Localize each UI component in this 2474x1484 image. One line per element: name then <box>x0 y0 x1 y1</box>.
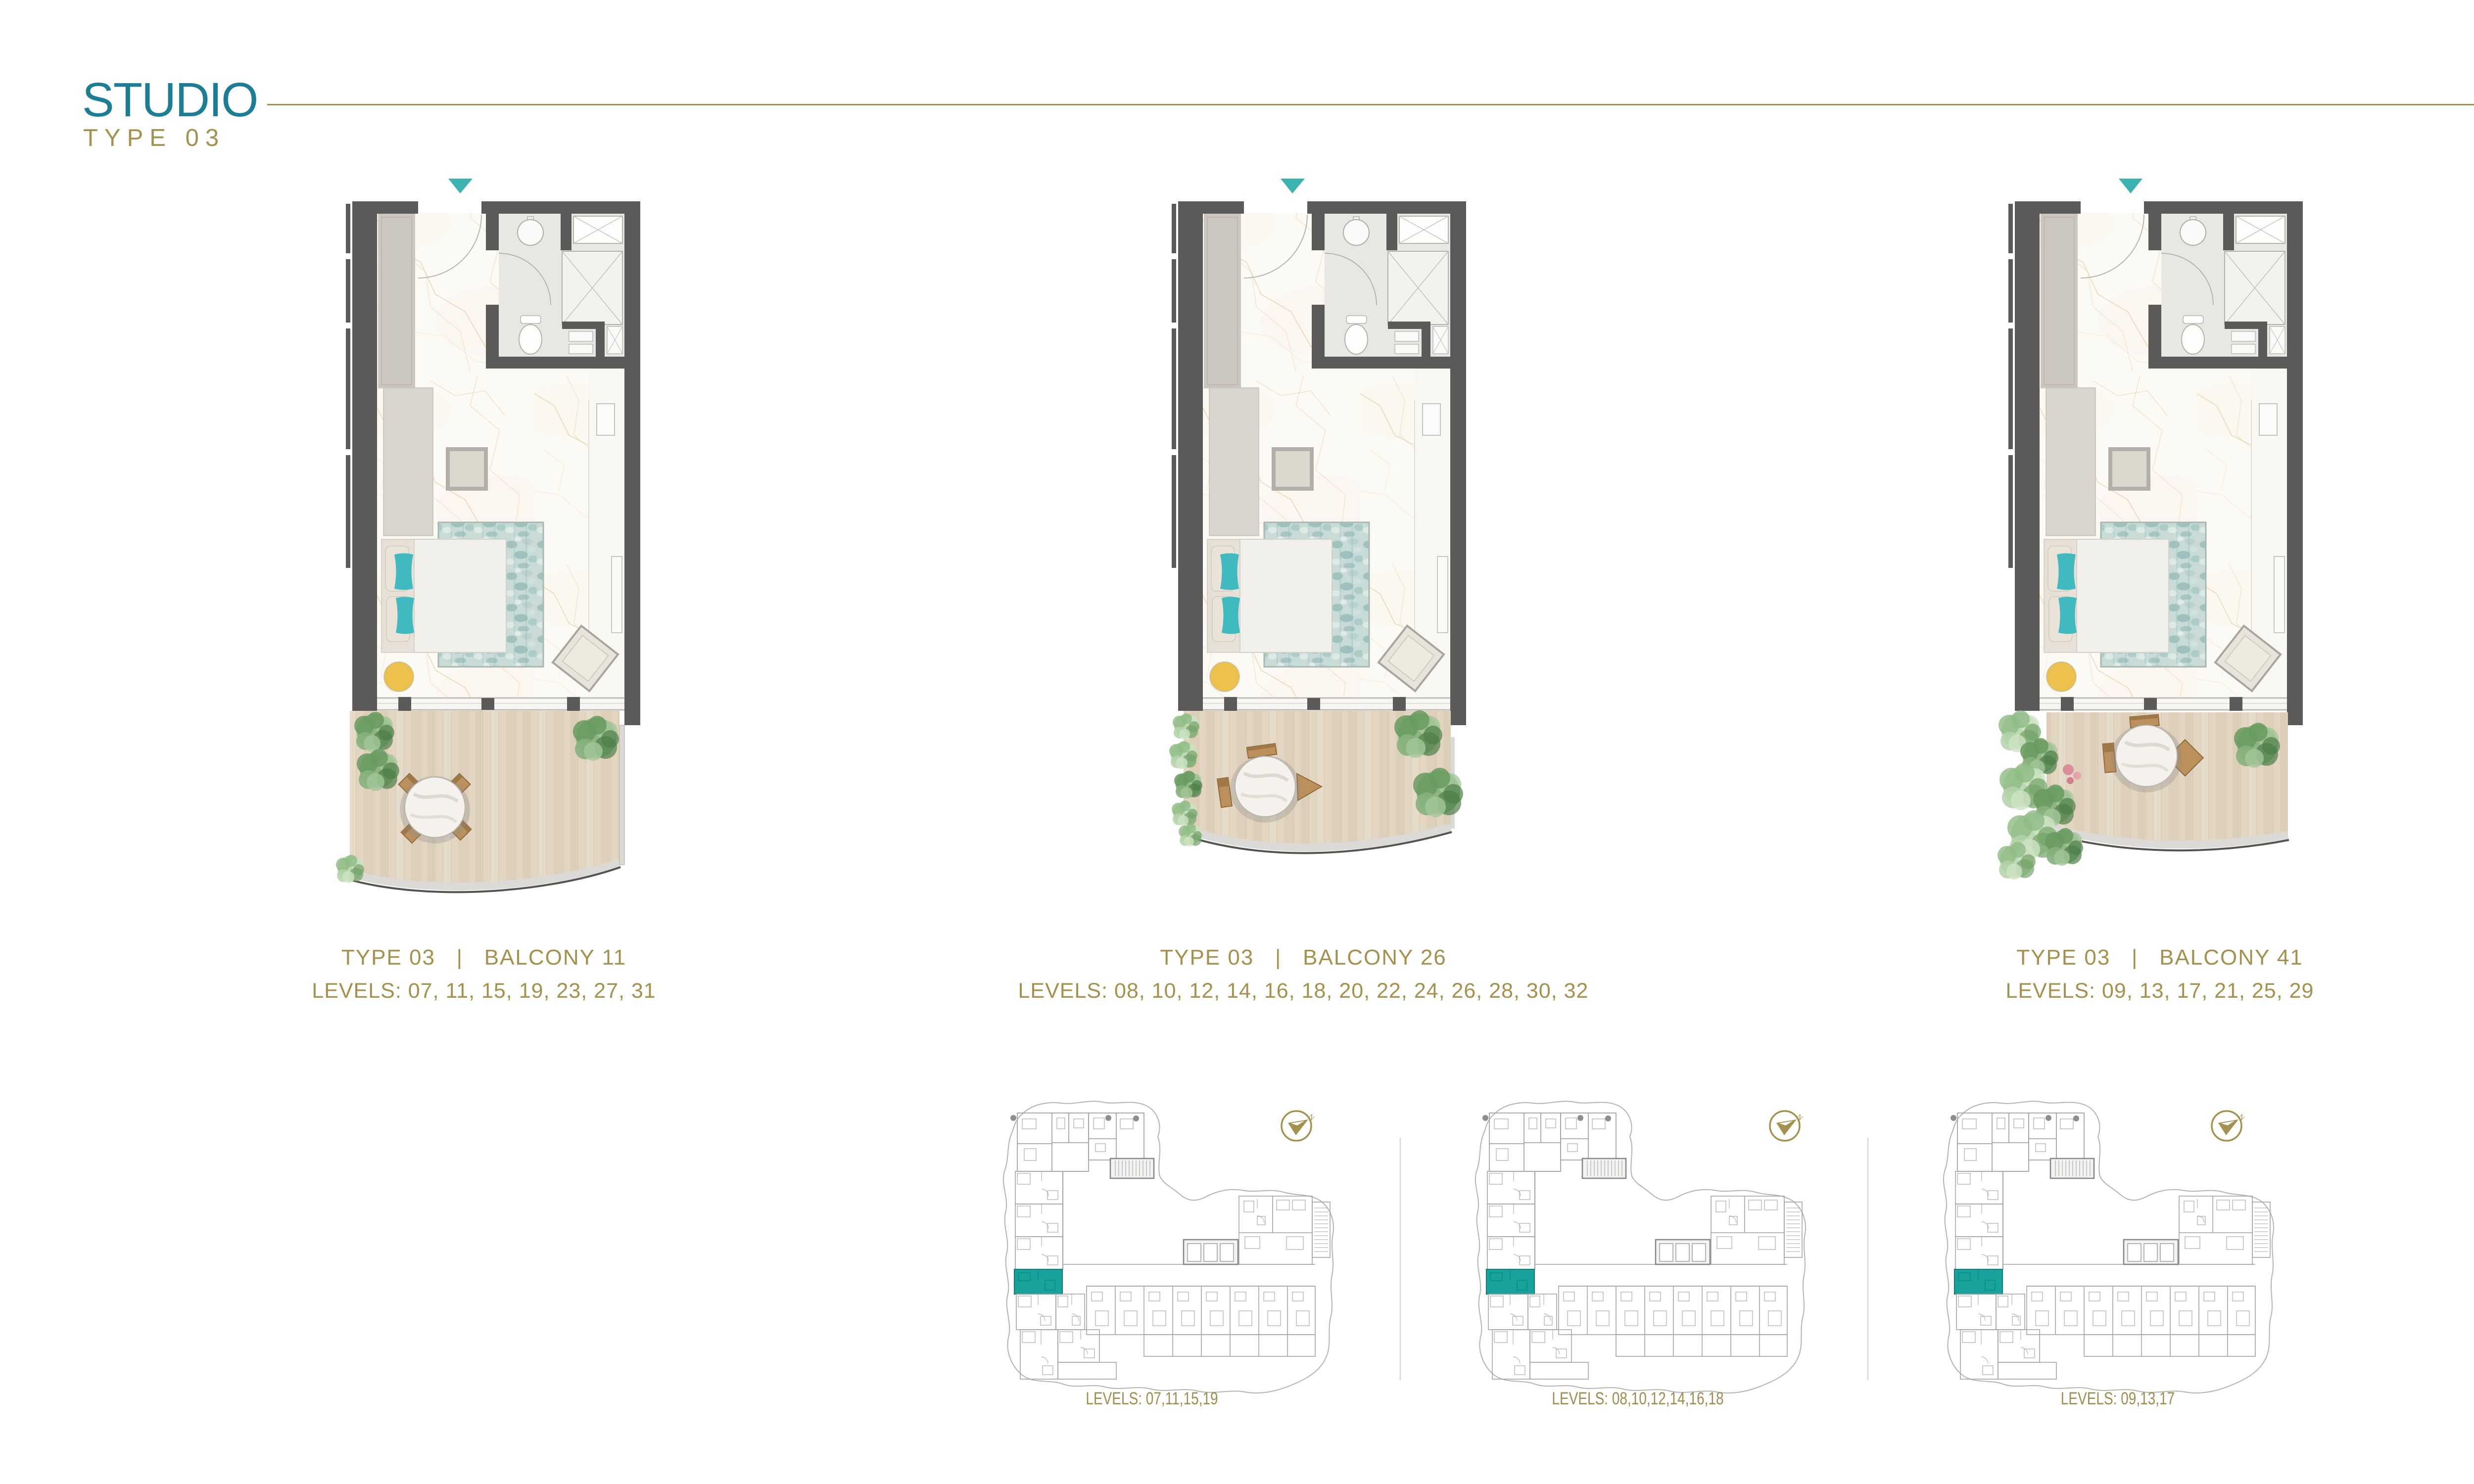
svg-text:N: N <box>1306 1113 1316 1122</box>
svg-text:N: N <box>1795 1113 1804 1122</box>
svg-text:N: N <box>2236 1113 2246 1122</box>
